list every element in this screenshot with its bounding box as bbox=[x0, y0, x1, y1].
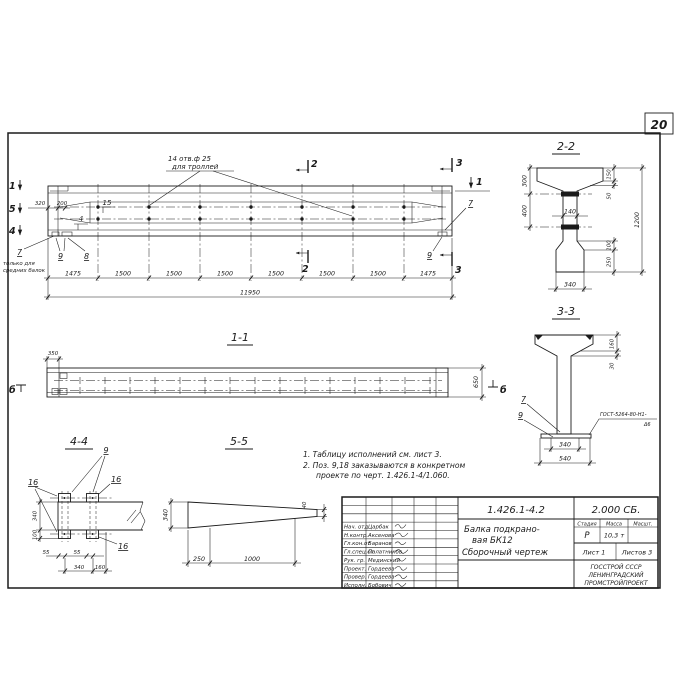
dim-340-v55: 340 bbox=[163, 509, 170, 521]
sig-role-0: Нач. отд bbox=[344, 524, 368, 530]
pos-15: 15 bbox=[99, 199, 115, 213]
sig-name-7: Бобович bbox=[368, 583, 391, 589]
section-1-1-title: 1-1 bbox=[231, 331, 249, 344]
chain-dim-1: 1500 bbox=[115, 271, 131, 278]
dim-320: 320 bbox=[35, 201, 46, 207]
sig-role-1: Н.контр. bbox=[344, 533, 368, 539]
sig-name-6: Гордеева bbox=[368, 575, 395, 581]
weld-designation-line1: ГОСТ-5264-80-Н1- bbox=[600, 412, 647, 418]
pos-16-right: 16 bbox=[111, 475, 121, 484]
title-block: 1.426.1-4.2 2.000 СБ. Балка подкрано- ва… bbox=[342, 497, 658, 589]
mark-3-top: 3 bbox=[456, 158, 463, 169]
dim-55-b: 55 bbox=[74, 550, 81, 556]
mark-b-right: б bbox=[488, 380, 507, 396]
mark-1-right: 1 bbox=[476, 177, 483, 188]
dim-340-v44-horiz: 340 bbox=[74, 565, 85, 571]
drawing-title-line3: Сборочный чертеж bbox=[462, 548, 548, 558]
drawing-canvas: 20 14 отв.ф 25 для тро bbox=[0, 0, 700, 700]
note-line-3: проекте по черт. 1.426.1-4/1.060. bbox=[316, 471, 450, 480]
notes-block: 1. Таблицу исполнений см. лист 3. 2. Поз… bbox=[303, 450, 465, 480]
sig-role-7: Исполн. bbox=[344, 583, 367, 589]
dim-340-s33: 340 bbox=[559, 442, 571, 449]
sheet-frame: 20 bbox=[8, 113, 673, 588]
stage-header: Стадия bbox=[577, 522, 596, 528]
pos-4-label: 4 bbox=[79, 215, 83, 223]
section-2-2-title: 2-2 bbox=[557, 140, 575, 153]
pad-left-b bbox=[62, 232, 72, 236]
mass-value: 10,3 т bbox=[604, 532, 625, 540]
chain-dim-4: 1500 bbox=[268, 271, 284, 278]
dim-340-s22: 340 bbox=[564, 282, 576, 289]
hole-callout-purpose: для троллей bbox=[171, 163, 219, 171]
mark-b-right-label: б bbox=[500, 385, 507, 396]
section-marks-left: 1 5 4 bbox=[8, 180, 20, 237]
dim-250: 250 bbox=[607, 256, 613, 267]
org-line-2: ЛЕНИНГРАДСКИЙ bbox=[588, 572, 645, 579]
signature-rows: Нач. отд Царбак Н.контр. Аксенова Гл.кон… bbox=[344, 524, 402, 589]
mark-2-bot: 2 bbox=[302, 264, 309, 275]
dim-30: 30 bbox=[610, 362, 616, 369]
chain-dim-2: 1500 bbox=[166, 271, 182, 278]
chain-dim-5: 1500 bbox=[319, 271, 335, 278]
sig-role-6: Провер. bbox=[344, 575, 366, 581]
pos-15-label: 15 bbox=[103, 199, 112, 207]
dim-250: 250 bbox=[193, 556, 205, 563]
note-only-for-line1: только для bbox=[3, 261, 36, 267]
sheets-label: Листов 3 bbox=[621, 549, 652, 557]
dim-1000: 1000 bbox=[244, 556, 260, 563]
pos-16-bottom: 16 bbox=[118, 542, 128, 551]
sig-name-0: Царбак bbox=[368, 524, 390, 530]
section-3-3-title: 3-3 bbox=[557, 305, 575, 318]
dim-50: 50 bbox=[607, 192, 613, 199]
note-line-1: 1. Таблицу исполнений см. лист 3. bbox=[303, 450, 442, 459]
beam-outline bbox=[48, 186, 452, 236]
dim-540: 540 bbox=[559, 456, 571, 463]
left-end-positions: 7 только для средних балок 9 8 bbox=[3, 236, 89, 274]
section-1-1-view: 1-1 350 650 б б bbox=[9, 331, 507, 401]
hole-callout-count: 14 отв.ф 25 bbox=[168, 155, 212, 163]
dim-40: 40 bbox=[302, 501, 308, 508]
drawing-title-line2: вая БК12 bbox=[472, 536, 513, 546]
dim-340-v44-vert: 340 bbox=[33, 510, 39, 521]
pos-16-left: 16 bbox=[28, 478, 38, 487]
note-line-2: 2. Поз. 9,18 заказываются в конкретном bbox=[303, 461, 465, 470]
view-4-4: 4-4 9 16 16 16 340 100 55 55 340 16 bbox=[28, 435, 145, 574]
dim-55-a: 55 bbox=[43, 550, 50, 556]
mark-2-top: 2 bbox=[311, 159, 318, 170]
doc-number: 1.426.1-4.2 bbox=[487, 505, 545, 516]
view-4-4-title: 4-4 bbox=[70, 435, 88, 448]
pos-7-s33: 7 bbox=[521, 395, 527, 404]
dim-140: 140 bbox=[564, 209, 576, 216]
org-line-1: ГОССТРОЙ СССР bbox=[590, 564, 641, 571]
pos-9-s33: 9 bbox=[518, 411, 523, 420]
sig-name-5: Гордеева bbox=[368, 566, 395, 572]
pos-7-left-label: 7 bbox=[17, 248, 23, 257]
dim-400: 400 bbox=[522, 205, 529, 217]
total-dim: 11950 bbox=[240, 290, 260, 297]
dim-160: 160 bbox=[610, 338, 616, 349]
section-2-2-view: 2-2 300 400 150 50 100 250 1200 140 340 bbox=[522, 140, 647, 292]
sig-name-4: Мединский bbox=[368, 558, 400, 564]
sig-name-2: Баранов bbox=[368, 541, 392, 547]
chain-dim-3: 1500 bbox=[217, 271, 233, 278]
section-3-3-view: 3-3 160 30 7 9 ГОСТ-5264-80-Н1- Δ6 340 5… bbox=[518, 305, 657, 466]
pos-7-right-label: 7 bbox=[468, 199, 474, 208]
mark-4-left: 4 bbox=[8, 226, 16, 237]
dim-1200: 1200 bbox=[634, 212, 641, 228]
chain-dim-0: 1475 bbox=[65, 271, 81, 278]
pos-9-right-label: 9 bbox=[427, 251, 432, 260]
chain-dim-6: 1500 bbox=[370, 271, 386, 278]
doc-code: 2.000 СБ. bbox=[592, 505, 641, 516]
org-line-3: ПРОМСТРОЙПРОЕКТ bbox=[584, 580, 649, 587]
end-dims: 320 200 bbox=[28, 201, 70, 211]
sig-name-1: Аксенова bbox=[367, 533, 395, 539]
chain-dim-7: 1475 bbox=[420, 271, 436, 278]
dim-650: 650 bbox=[473, 376, 480, 388]
dim-100-v44: 100 bbox=[33, 529, 39, 540]
mark-5-left: 5 bbox=[9, 204, 16, 215]
blueprint-sheet: 20 14 отв.ф 25 для тро bbox=[0, 0, 700, 700]
dim-350: 350 bbox=[48, 351, 59, 357]
sheet-label: Лист 1 bbox=[582, 549, 606, 557]
mass-header: Масса bbox=[606, 522, 622, 528]
sig-role-5: Проект. bbox=[344, 566, 366, 572]
dim-150: 150 bbox=[607, 169, 613, 180]
sheet-number: 20 bbox=[651, 118, 668, 132]
mark-b-left-label: б bbox=[9, 385, 16, 396]
mark-b-left: б bbox=[9, 385, 26, 396]
scale-header: Масшт. bbox=[633, 522, 652, 528]
stage-value: Р bbox=[584, 531, 590, 541]
pad-right bbox=[438, 232, 447, 236]
pos-8-label: 8 bbox=[84, 252, 89, 261]
drawing-title-line1: Балка подкрано- bbox=[464, 525, 540, 535]
pos-9-v44: 9 bbox=[103, 446, 108, 455]
pos-9-left-label: 9 bbox=[58, 252, 63, 261]
mark-3-bot: 3 bbox=[455, 265, 462, 276]
note-only-for-line2: средних балок bbox=[3, 268, 46, 274]
weld-designation-line2: Δ6 bbox=[643, 422, 651, 428]
mark-1-left: 1 bbox=[9, 181, 16, 192]
plan-hole-ticks bbox=[80, 377, 430, 394]
main-elevation-view: 14 отв.ф 25 для троллей 1 5 4 320 200 15 bbox=[3, 155, 490, 300]
dim-160-v44: 160 bbox=[95, 565, 106, 571]
dim-100: 100 bbox=[607, 240, 613, 251]
dim-300: 300 bbox=[522, 175, 529, 187]
sig-role-4: Рук. гр. bbox=[344, 558, 365, 564]
view-5-5-title: 5-5 bbox=[230, 435, 248, 448]
cut-marks: 2 2 3 3 1 bbox=[296, 158, 490, 276]
right-end-positions: 7 9 bbox=[427, 199, 474, 260]
